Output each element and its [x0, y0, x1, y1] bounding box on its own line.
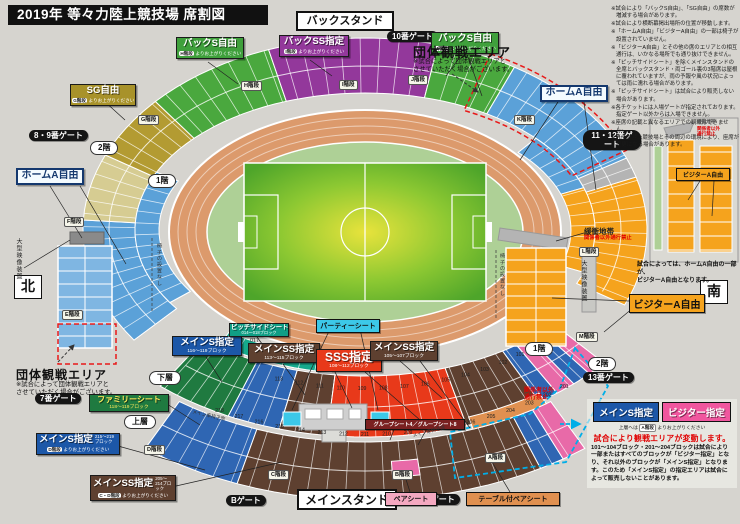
buffer-zone-warning: 関係者以外通行禁止 — [584, 235, 632, 241]
inset-no-pass-warning: 関係者以外 通行禁止 — [697, 126, 720, 137]
block-number: 201 — [560, 384, 569, 390]
note-item: ※等々力陸上競技場とその周辺の環境により、座席が変更になる場合があります。 — [611, 135, 739, 149]
stair-b: B階段 — [392, 470, 413, 480]
variable-stair-note: 上層へはA階段よりお上がりください — [591, 424, 733, 432]
floor-upper: 上層 — [124, 415, 156, 429]
block-number: 109 — [358, 386, 367, 392]
inset-buffer-label: 緩衝地帯 — [697, 119, 715, 125]
section-label-main-s-upper: メインS指定 215～219ブロック D階段よりお上がりください — [36, 433, 120, 455]
floor-lower: 下層 — [149, 371, 181, 385]
section-title: メインS指定 — [39, 435, 93, 446]
section-blocks: 105～107ブロック — [373, 354, 435, 359]
block-number: 104 — [461, 373, 470, 379]
group-area-note-top: ※試合によって団体観戦エリアと させていただく場合がございます。 — [413, 58, 513, 74]
screen-label-right: 大型映像装置 — [579, 260, 588, 302]
block-number: 113 — [275, 376, 283, 382]
floor-1f-left: 1階 — [148, 174, 176, 188]
block-number: 105 — [441, 378, 450, 384]
section-title: バックSS指定 — [282, 37, 346, 48]
variable-headline: 試合により観戦エリアが変動します。 — [591, 433, 733, 444]
block-number: 205 — [487, 414, 496, 420]
gate-b: Bゲート — [226, 495, 266, 506]
section-title: メインSS指定 — [373, 343, 435, 354]
section-blocks: 215～219ブロック — [95, 435, 117, 445]
note-item: ※「ホームA自由」「ビジターA自由」の一部は椅子が設置されていません。 — [611, 29, 739, 43]
block-number: 213 — [318, 430, 327, 436]
stair-m: M階段 — [576, 332, 598, 342]
section-blocks: 116～119ブロック — [175, 349, 239, 354]
no-chair-note-right: 椅子の設置なし — [499, 253, 506, 296]
stair-d: D階段 — [144, 445, 165, 455]
section-title: メインS指定 — [175, 338, 239, 349]
block-number: 110 — [337, 385, 345, 391]
page-title: 2019年 等々力陸上競技場 席割図 — [8, 5, 268, 25]
section-label-party: パーティーシート — [316, 319, 380, 333]
inset-note: 試合によっては、ホームA自由の一部が、 ビジターA自由となります。 — [637, 262, 739, 285]
block-number: 212 — [339, 432, 348, 438]
block-number: 215 — [275, 424, 284, 430]
stair-k: K階段 — [514, 115, 535, 125]
group-area-note-bottom: ※試合によって団体観戦エリアと させていただく場合がございます。 — [16, 381, 116, 397]
screen-label-left: 大型映像装置 — [14, 238, 23, 280]
stair-j: J階段 — [408, 75, 428, 85]
no-pass-warning: 関係者以外 通行禁止 — [524, 388, 554, 402]
stair-l: L階段 — [579, 247, 599, 257]
section-label-sg: SG自由 G階段よりお上がりください — [70, 84, 136, 106]
block-number: 210 — [382, 432, 391, 438]
block-number: 217 — [235, 414, 244, 420]
section-label-table-pair: テーブル付ペアシート — [466, 492, 560, 506]
note-item: ※試合により横断幕掲出場所の位置が移動します。 — [611, 21, 739, 28]
block-number: 214 — [296, 428, 305, 434]
section-title: メインSS指定 — [251, 345, 317, 356]
section-blocks: 014～018ブロック — [231, 331, 287, 336]
section-title: SG自由 — [73, 86, 133, 97]
section-label-main-ss-113: メインSS指定 113～115ブロック — [248, 343, 320, 363]
section-title: バックS自由 — [179, 39, 241, 50]
section-label-back-ss: バックSS指定 I階段よりお上がりください — [279, 35, 349, 57]
stair-note: I階段よりお上がりください — [282, 49, 346, 55]
note-item: ※「ピッチサイドシート」は試合により販売しない場合があります。 — [611, 89, 739, 103]
section-label-home-a-right: ホームA自由 — [540, 85, 608, 102]
section-label-main-ss-105: メインSS指定 105～107ブロック — [370, 341, 438, 361]
floor-2f-left: 2階 — [90, 141, 118, 155]
note-item: ※試合により「バックS自由」、「SG自由」の席数が増減する場合があります。 — [611, 6, 739, 20]
section-blocks: 113～115ブロック — [251, 356, 317, 361]
no-chair-note-left: 椅子の設置なし — [156, 243, 163, 286]
variable-area-box: メインS指定 ビジター指定 上層へはA階段よりお上がりください 試合により観戦エ… — [587, 399, 737, 488]
variable-main-s-label: メインS指定 — [593, 402, 659, 422]
block-number: 206 — [467, 420, 476, 426]
block-number: 103 — [480, 367, 489, 373]
floor-1f-right: 1階 — [525, 342, 553, 356]
block-number: 108 — [379, 386, 388, 392]
stair-c: C階段 — [268, 470, 289, 480]
stair-a: A階段 — [485, 453, 506, 463]
variable-body: 101～104ブロック・201～204ブロックは試合により一部またはすべてのブロ… — [591, 445, 733, 485]
block-number: 106 — [421, 381, 430, 387]
note-item: ※「ピッチサイドシート」を除くメインスタンドの全席とバックスタンド・両ゴール裏の… — [611, 60, 739, 89]
section-blocks: 108～112ブロック — [319, 364, 379, 369]
stair-h: H階段 — [241, 81, 262, 91]
floor-2f-right: 2階 — [588, 357, 616, 371]
section-label-pair: ペアシート — [385, 492, 437, 506]
back-stand-label: バックスタンド — [296, 11, 394, 31]
stair-f: F階段 — [64, 217, 84, 227]
main-stand-label: メインスタンド — [297, 489, 397, 510]
block-number: 204 — [506, 408, 515, 414]
section-label-pitchside: ピッチサイドシート 014～018ブロック — [229, 323, 289, 337]
block-number: 102 — [499, 360, 508, 366]
block-number: 216 — [255, 420, 264, 426]
stair-note: C・D階段よりお上がりください — [93, 493, 173, 499]
stair-note: G階段よりお上がりください — [73, 98, 133, 104]
variable-visitor-label: ビジター指定 — [662, 402, 731, 422]
stair-note: H階段よりお上がりください — [179, 51, 241, 57]
block-number: 101 — [516, 352, 525, 358]
block-number: 111 — [316, 383, 324, 389]
section-title: メインSS指定 — [93, 479, 153, 490]
section-label-visitor-a: ビジターA自由 — [629, 294, 705, 313]
inset-visitor-label: ビジターA自由 — [676, 168, 730, 181]
block-number: 107 — [400, 384, 409, 390]
stadium-seating-map: 1131121111101091081071061051041031021012… — [0, 0, 740, 524]
note-item: ※「ビジターA自由」とその他の席のエリアとの相互通行は、いかなる場所でも通り抜け… — [611, 45, 739, 59]
section-label-group: グループシート4／グループシート8 — [365, 419, 465, 430]
stair-note: D階段よりお上がりください — [39, 447, 117, 453]
section-label-main-ss-upper: メインSS指定 205～214ブロック C・D階段よりお上がりください — [90, 475, 176, 501]
section-label-main-s-lower: メインS指定 116～119ブロック — [172, 336, 242, 356]
section-blocks: 118～119ブロック — [92, 405, 166, 410]
section-label-home-a-left: ホームA自由 — [16, 168, 84, 185]
section-label-back-s-left: バックS自由 H階段よりお上がりください — [176, 37, 244, 59]
gate-8-9: 8・9番ゲート — [29, 130, 88, 141]
note-item: ※各チケットには入場ゲートが指定されております。指定ゲート以外からは入場できませ… — [611, 105, 739, 119]
block-number: 211 — [361, 432, 369, 438]
gate-13: 13番ゲート — [583, 372, 634, 383]
section-blocks: 205～214ブロック — [155, 477, 173, 492]
stair-e: E階段 — [62, 310, 83, 320]
block-number: 112 — [295, 380, 303, 386]
stair-i: I階段 — [339, 80, 358, 90]
stair-g: G階段 — [138, 115, 159, 125]
